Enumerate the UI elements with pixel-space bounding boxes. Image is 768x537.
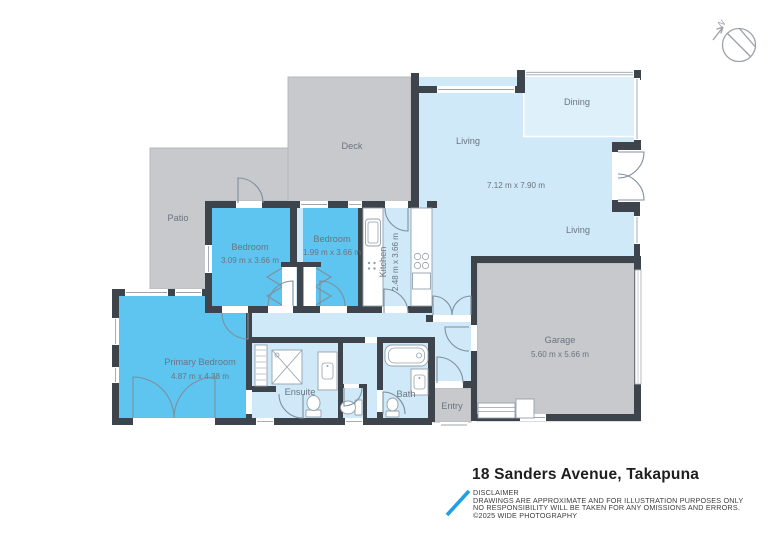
deck-label: Deck — [342, 141, 363, 151]
dining-label: Dining — [564, 97, 590, 107]
garage-label: Garage — [545, 335, 576, 345]
kitchen-label: Kitchen — [378, 247, 388, 278]
oven — [413, 273, 431, 289]
living-label-lower: Living — [566, 225, 590, 235]
disclaimer-line: ©2025 WIDE PHOTOGRAPHY — [473, 512, 743, 520]
ensuite-label: Ensuite — [285, 387, 316, 397]
primary-bedroom-label: Primary Bedroom — [164, 357, 236, 367]
living-dims: 7.12 m x 7.90 m — [487, 181, 545, 190]
bedroom1-dims: 3.09 m x 3.66 m — [221, 256, 279, 265]
kitchen-dims: 2.48 m x 3.66 m — [391, 233, 400, 291]
laundry-counter — [478, 403, 515, 418]
photography-logo — [444, 488, 472, 518]
laundry-appliance — [516, 399, 534, 418]
bath-toilet — [386, 411, 399, 417]
ensuite-toilet — [306, 410, 321, 417]
bedroom2-label: Bedroom — [313, 234, 351, 244]
property-title: 18 Sanders Avenue, Takapuna — [472, 466, 699, 484]
compass-north-label: N — [716, 17, 727, 29]
bedroom1-label: Bedroom — [231, 242, 269, 252]
bath-label: Bath — [397, 389, 416, 399]
dining-bay-fill — [523, 77, 634, 137]
bedroom2-dims: 1.99 m x 3.66 m — [303, 248, 361, 257]
disclaimer-block: DISCLAIMER DRAWINGS ARE APPROXIMATE AND … — [473, 489, 743, 519]
living-label-upper: Living — [456, 136, 480, 146]
ensuite-vanity — [318, 352, 337, 390]
floorplan-graphic: Deck Patio Living Dining 7.12 m x 7.90 m… — [0, 0, 768, 537]
primary-bedroom-dims: 4.87 m x 4.38 m — [171, 372, 229, 381]
garage-dims: 5.60 m x 5.66 m — [531, 350, 589, 359]
wc-toilet — [355, 400, 362, 415]
floorplan-page: Deck Patio Living Dining 7.12 m x 7.90 m… — [0, 0, 768, 537]
compass-icon: N — [713, 17, 756, 61]
patio-label: Patio — [168, 213, 189, 223]
entry-label: Entry — [441, 401, 463, 411]
